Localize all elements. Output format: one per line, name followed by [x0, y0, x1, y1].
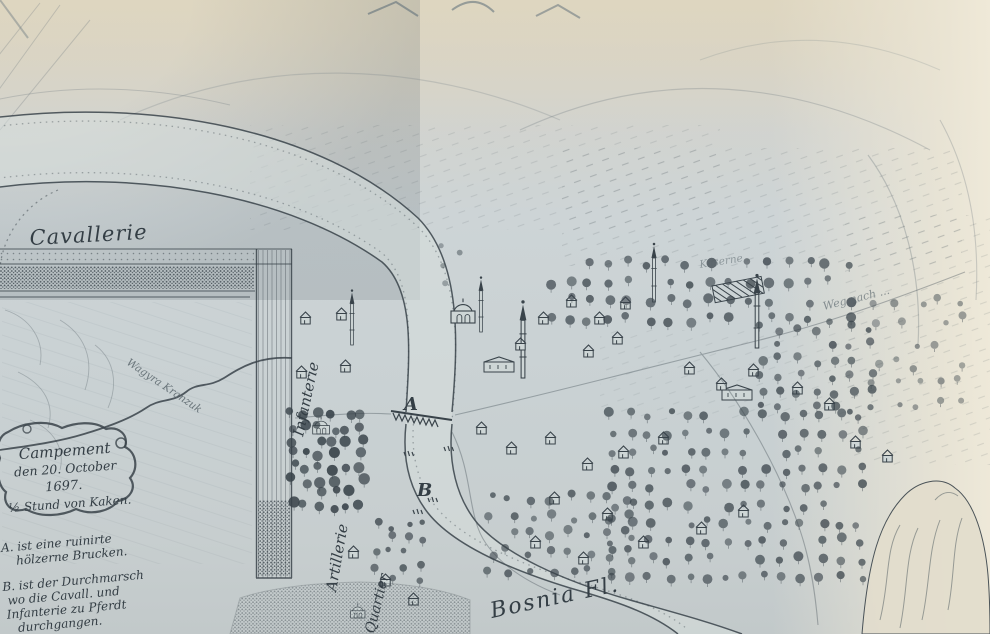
tree-mark: [783, 506, 789, 512]
tree-mark: [317, 487, 327, 497]
tree-mark: [407, 522, 412, 527]
tree-mark: [359, 473, 370, 484]
tree-mark: [866, 327, 872, 333]
tree-mark: [685, 554, 693, 562]
tree-mark: [663, 318, 672, 327]
tree-mark: [604, 407, 614, 417]
tree-mark: [780, 539, 787, 546]
tree-mark: [958, 398, 964, 404]
tree-mark: [607, 541, 613, 547]
tree-mark: [568, 490, 576, 498]
tree-mark: [602, 492, 610, 500]
tree-mark: [804, 316, 811, 323]
tree-mark: [918, 378, 924, 384]
tree-mark: [943, 320, 948, 325]
tree-mark: [825, 275, 831, 281]
tree-mark: [625, 276, 632, 283]
tree-mark: [605, 260, 613, 268]
tree-mark: [483, 567, 491, 575]
tree-mark: [504, 569, 512, 577]
tree-mark: [722, 479, 732, 489]
tree-mark: [755, 555, 765, 565]
tree-mark: [722, 448, 729, 455]
tree-mark: [388, 526, 394, 532]
tree-mark: [589, 512, 597, 520]
tree-mark: [806, 300, 814, 308]
tree-mark: [648, 467, 655, 474]
tree-mark: [625, 572, 635, 582]
tree-mark: [702, 486, 709, 493]
tree-mark: [621, 526, 630, 535]
tree-mark: [745, 519, 751, 525]
tree-mark: [331, 505, 339, 513]
tree-mark: [836, 522, 844, 530]
tree-mark: [645, 501, 654, 510]
tree-mark: [858, 479, 867, 488]
tree-mark: [741, 480, 750, 489]
tree-mark: [910, 365, 917, 372]
tree-mark: [793, 352, 801, 360]
tree-mark: [315, 502, 325, 512]
tree-mark: [683, 501, 692, 510]
tree-mark: [795, 519, 803, 527]
tree-mark: [663, 558, 671, 566]
tree-mark: [855, 414, 861, 420]
tree-mark: [343, 485, 354, 496]
tree-mark: [795, 445, 802, 452]
tree-mark: [401, 548, 407, 554]
tree-mark: [820, 500, 827, 507]
tree-mark: [358, 434, 368, 444]
map-drawing: Cavallerie Infanterie Artillerie Quartie…: [0, 0, 990, 634]
tree-mark: [385, 547, 390, 552]
tree-mark: [665, 468, 671, 474]
tree-mark: [644, 535, 653, 544]
tree-mark: [829, 375, 836, 382]
tree-mark: [860, 576, 866, 582]
tree-mark: [814, 482, 822, 490]
tree-mark: [777, 572, 786, 581]
tree-mark: [800, 429, 809, 438]
tree-mark: [547, 313, 556, 322]
tree-mark: [504, 495, 510, 501]
tree-mark: [740, 501, 746, 507]
tree-mark: [649, 552, 657, 560]
tree-mark: [313, 407, 324, 418]
tree-mark: [699, 466, 707, 474]
tree-mark: [724, 312, 734, 322]
tree-mark: [706, 428, 712, 434]
tree-mark: [667, 575, 676, 584]
tree-mark: [727, 296, 735, 304]
tree-mark: [353, 462, 364, 473]
tree-mark: [782, 450, 790, 458]
tree-mark: [546, 280, 556, 290]
tree-mark: [814, 360, 821, 367]
tree-mark: [792, 390, 800, 398]
tree-mark: [760, 388, 768, 396]
tree-mark: [703, 293, 713, 303]
tree-mark: [300, 465, 309, 474]
tree-mark: [342, 464, 350, 472]
tree-mark: [629, 449, 636, 456]
tree-mark: [342, 503, 349, 510]
tree-mark: [915, 344, 920, 349]
tree-mark: [938, 377, 945, 384]
tree-mark: [545, 531, 554, 540]
tree-mark: [781, 412, 790, 421]
tree-mark: [872, 319, 880, 327]
tree-mark: [764, 522, 772, 530]
camp-tent-row-sparse: [0, 251, 254, 263]
tree-mark: [568, 293, 575, 300]
tree-mark: [684, 411, 693, 420]
marker-b: B: [416, 480, 432, 501]
tree-mark: [800, 410, 808, 418]
tree-mark: [723, 575, 729, 581]
tree-mark: [439, 243, 444, 248]
marker-a: A: [402, 394, 418, 415]
tree-mark: [286, 407, 294, 415]
tree-mark: [440, 263, 445, 268]
tree-mark: [606, 295, 616, 305]
tree-mark: [858, 426, 868, 436]
tree-mark: [621, 295, 631, 305]
tree-mark: [340, 436, 351, 447]
tree-mark: [587, 491, 596, 500]
tree-mark: [571, 567, 579, 575]
tree-mark: [662, 450, 668, 456]
tree-mark: [607, 482, 617, 492]
tree-mark: [845, 344, 851, 350]
tree-mark: [815, 447, 822, 454]
tree-mark: [831, 402, 840, 411]
tree-mark: [340, 426, 349, 435]
tree-mark: [846, 262, 853, 269]
tree-mark: [609, 450, 616, 457]
tree-mark: [584, 532, 590, 538]
tree-mark: [586, 258, 594, 266]
tree-mark: [831, 357, 839, 365]
tree-mark: [689, 522, 695, 528]
tree-mark: [370, 564, 378, 572]
tree-mark: [624, 545, 632, 553]
tree-mark: [289, 446, 298, 455]
tree-mark: [931, 341, 939, 349]
tree-mark: [511, 528, 518, 535]
tree-mark: [289, 496, 300, 507]
tree-mark: [442, 280, 448, 286]
tree-mark: [779, 481, 785, 487]
tree-mark: [890, 299, 898, 307]
tree-mark: [848, 357, 856, 365]
tree-mark: [745, 298, 752, 305]
tree-mark: [527, 568, 533, 574]
tree-mark: [611, 504, 619, 512]
tree-mark: [724, 503, 734, 513]
camp-tent-row-dense: [0, 266, 254, 289]
tree-mark: [814, 389, 821, 396]
tree-mark: [761, 571, 768, 578]
tree-mark: [798, 465, 805, 472]
tree-mark: [584, 565, 591, 572]
tree-mark: [869, 369, 877, 377]
tree-mark: [643, 572, 651, 580]
tree-mark: [837, 571, 845, 579]
tree-mark: [855, 446, 861, 452]
tree-mark: [647, 318, 656, 327]
tree-mark: [755, 371, 763, 379]
tree-mark: [511, 512, 519, 520]
tree-mark: [784, 278, 794, 288]
tree-mark: [686, 537, 695, 546]
tree-mark: [545, 497, 554, 506]
tree-mark: [819, 554, 829, 564]
tree-mark: [718, 519, 728, 529]
tree-mark: [667, 279, 674, 286]
tree-mark: [567, 276, 577, 286]
tree-mark: [327, 465, 338, 476]
tree-mark: [665, 537, 672, 544]
tree-mark: [326, 437, 336, 447]
tree-mark: [837, 408, 846, 417]
tree-mark: [957, 301, 963, 307]
tree-mark: [746, 279, 756, 289]
tree-mark: [623, 496, 632, 505]
tree-mark: [739, 407, 749, 417]
tree-mark: [628, 481, 636, 489]
tree-mark: [818, 463, 827, 472]
tree-mark: [913, 404, 919, 410]
tree-mark: [720, 428, 730, 438]
tree-mark: [312, 451, 322, 461]
tree-mark: [707, 553, 714, 560]
tree-mark: [867, 404, 873, 410]
tree-mark: [785, 313, 794, 322]
tree-mark: [525, 552, 532, 559]
tree-mark: [314, 477, 325, 488]
tree-mark: [355, 423, 364, 432]
tree-mark: [644, 414, 651, 421]
tree-mark: [959, 311, 967, 319]
tree-mark: [707, 312, 714, 319]
tree-mark: [725, 538, 732, 545]
tree-mark: [776, 557, 783, 564]
tree-mark: [897, 402, 902, 407]
tree-mark: [662, 498, 672, 508]
tree-mark: [868, 379, 875, 386]
tree-mark: [818, 536, 826, 544]
tree-mark: [847, 409, 853, 415]
tree-mark: [847, 321, 855, 329]
tree-mark: [686, 479, 695, 488]
tree-mark: [738, 571, 746, 579]
tree-mark: [643, 431, 651, 439]
tree-mark: [765, 299, 773, 307]
tree-mark: [667, 294, 675, 302]
tree-mark: [582, 317, 591, 326]
tree-mark: [405, 532, 413, 540]
tree-mark: [329, 447, 340, 458]
tree-mark: [332, 428, 340, 436]
tree-mark: [893, 356, 899, 362]
tree-mark: [812, 327, 821, 336]
tree-mark: [774, 341, 780, 347]
tree-mark: [804, 278, 811, 285]
tree-mark: [743, 428, 749, 434]
tree-mark: [763, 257, 771, 265]
tree-mark: [868, 385, 877, 394]
tree-mark: [758, 409, 767, 418]
tree-mark: [682, 430, 689, 437]
tree-mark: [817, 430, 826, 439]
tree-mark: [628, 557, 635, 564]
tree-mark: [933, 294, 941, 302]
tree-mark: [837, 557, 846, 566]
tree-mark: [646, 298, 656, 308]
tree-mark: [621, 312, 629, 320]
tree-mark: [303, 448, 310, 455]
tree-mark: [837, 532, 847, 542]
tree-mark: [758, 536, 766, 544]
tree-mark: [645, 484, 653, 492]
tree-mark: [643, 262, 651, 270]
tree-mark: [355, 410, 365, 420]
tree-mark: [662, 431, 672, 441]
tree-mark: [650, 445, 657, 452]
tree-mark: [313, 421, 321, 429]
tree-mark: [852, 522, 859, 529]
camp-column-dense: [258, 500, 290, 576]
tree-mark: [680, 261, 689, 270]
tree-mark: [756, 480, 764, 488]
tree-mark: [646, 518, 656, 528]
tree-mark: [819, 258, 829, 268]
tree-mark: [757, 500, 765, 508]
tree-mark: [744, 258, 751, 265]
tree-mark: [820, 519, 829, 528]
tree-mark: [490, 492, 496, 498]
tree-mark: [669, 408, 675, 414]
tree-mark: [683, 299, 692, 308]
tree-mark: [704, 516, 711, 523]
tree-mark: [786, 257, 794, 265]
tree-mark: [286, 472, 296, 482]
tree-mark: [588, 551, 596, 559]
tree-mark: [703, 574, 713, 584]
tree-mark: [837, 465, 846, 474]
tree-mark: [609, 546, 617, 554]
tree-mark: [701, 448, 710, 457]
tree-mark: [604, 280, 612, 288]
tree-mark: [829, 341, 837, 349]
tree-mark: [856, 539, 864, 547]
tree-mark: [624, 256, 632, 264]
tree-mark: [313, 462, 321, 470]
tree-mark: [774, 403, 781, 410]
tree-mark: [582, 278, 591, 287]
tree-mark: [375, 518, 383, 526]
tree-mark: [531, 516, 537, 522]
tree-mark: [347, 410, 357, 420]
tree-mark: [457, 250, 463, 256]
tree-mark: [628, 429, 637, 438]
tree-mark: [563, 525, 572, 534]
tree-mark: [774, 374, 781, 381]
tree-mark: [329, 476, 340, 487]
tree-mark: [845, 370, 853, 378]
tree-mark: [859, 463, 867, 471]
tree-mark: [333, 486, 341, 494]
tree-mark: [782, 519, 788, 525]
tree-mark: [417, 577, 424, 584]
tree-mark: [725, 278, 732, 285]
tree-mark: [682, 464, 691, 473]
tree-mark: [761, 464, 771, 474]
tree-mark: [292, 459, 299, 466]
tree-mark: [793, 324, 801, 332]
tree-mark: [814, 573, 823, 582]
tree-mark: [399, 564, 407, 572]
tree-mark: [937, 397, 944, 404]
tree-mark: [527, 497, 535, 505]
tree-mark: [419, 537, 426, 544]
tree-mark: [705, 277, 715, 287]
tree-mark: [628, 535, 634, 541]
tree-mark: [959, 362, 965, 368]
tree-mark: [758, 402, 764, 408]
tree-mark: [686, 318, 696, 328]
tree-mark: [740, 450, 747, 457]
tree-mark: [607, 514, 616, 523]
tree-mark: [815, 411, 823, 419]
tree-mark: [571, 517, 577, 523]
tree-mark: [484, 512, 492, 520]
tree-mark: [954, 375, 961, 382]
tree-mark: [373, 548, 380, 555]
tree-mark: [565, 315, 575, 325]
tree-mark: [501, 544, 509, 552]
tree-mark: [688, 574, 695, 581]
tree-mark: [793, 551, 803, 561]
tree-mark: [773, 352, 781, 360]
tree-mark: [808, 257, 815, 264]
tree-mark: [547, 546, 555, 554]
tree-mark: [775, 328, 783, 336]
tree-mark: [738, 466, 747, 475]
tree-mark: [800, 504, 808, 512]
tree-mark: [699, 411, 708, 420]
tree-mark: [688, 448, 696, 456]
tree-mark: [586, 295, 594, 303]
tree-mark: [858, 559, 865, 566]
tree-mark: [758, 356, 768, 366]
tree-mark: [388, 531, 396, 539]
tree-mark: [610, 431, 616, 437]
tree-mark: [564, 548, 571, 555]
tree-mark: [627, 408, 635, 416]
scanned-map-page: Cavallerie Infanterie Artillerie Quartie…: [0, 0, 990, 634]
tree-mark: [898, 317, 906, 325]
tree-mark: [303, 479, 312, 488]
tree-mark: [701, 539, 709, 547]
tree-mark: [875, 360, 883, 368]
tree-mark: [896, 378, 901, 383]
tree-mark: [547, 509, 556, 518]
tree-mark: [287, 438, 297, 448]
tree-mark: [798, 370, 805, 377]
tree-mark: [764, 278, 775, 289]
